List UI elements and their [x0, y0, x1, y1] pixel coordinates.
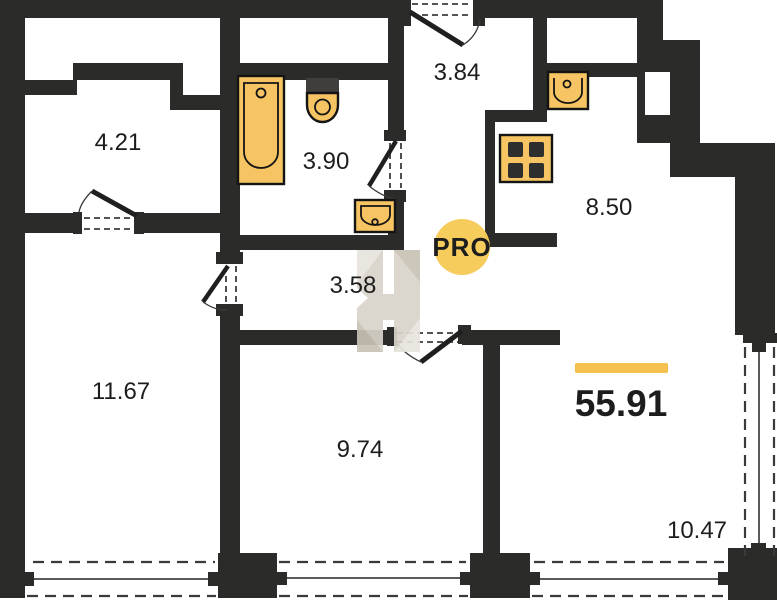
door-jamb — [216, 252, 243, 264]
window-frame-nub — [751, 543, 766, 553]
room-area-label: 11.67 — [92, 378, 150, 405]
window-frame-nub — [530, 572, 540, 585]
wall-segment — [743, 333, 777, 343]
bathroom-sink-icon — [355, 200, 395, 232]
room-area-label: 9.74 — [337, 436, 384, 463]
n-logo-facet — [383, 250, 394, 270]
pro-badge: PRO — [432, 219, 491, 275]
door-jamb — [400, 0, 411, 26]
wall-segment — [73, 63, 172, 80]
stove-burner — [529, 142, 544, 157]
wall-segment — [20, 80, 77, 95]
room-area-label: 3.58 — [330, 272, 377, 299]
room-area-label: 8.50 — [586, 194, 633, 221]
floorplan-svg: PRO 4.21 3.90 3.84 8.50 3.58 11.67 9.74 … — [0, 0, 777, 600]
door-leaf — [421, 331, 462, 362]
toilet-icon — [306, 78, 339, 122]
stove-burner — [508, 142, 523, 157]
pro-badge-text: PRO — [432, 232, 491, 262]
total-area-accent-bar — [575, 363, 668, 373]
wall-segment — [143, 213, 222, 233]
room-area-label: 3.84 — [434, 59, 481, 86]
bathtub-icon — [238, 76, 284, 184]
stove-burner — [529, 163, 544, 178]
wall-segment — [533, 13, 547, 122]
bottom-window-band — [25, 562, 728, 596]
stove-body — [500, 135, 552, 182]
wall-segment — [485, 110, 495, 247]
wall-segment — [670, 143, 775, 177]
wall-segment — [0, 0, 663, 18]
n-logo-crossbar — [381, 294, 396, 320]
entrance-door — [400, 0, 485, 45]
window-frame-nub — [718, 572, 728, 585]
room-top-left-door — [73, 191, 144, 234]
wall-segment — [183, 95, 222, 110]
toilet-tank — [306, 78, 339, 93]
window-frame-nub — [25, 572, 34, 586]
wall-segment — [735, 177, 775, 335]
wall-pier — [728, 548, 777, 600]
kitchen-sink-icon — [548, 72, 588, 109]
wall-segment — [462, 330, 560, 345]
bathroom-door — [369, 130, 406, 202]
right-window — [745, 343, 774, 560]
total-area-label: 55.91 — [575, 383, 668, 424]
room-area-label: 4.21 — [95, 129, 142, 156]
duct-shaft — [645, 72, 670, 115]
wall-segment — [388, 17, 404, 130]
wall-segment — [0, 213, 74, 233]
window-frame-nub — [460, 572, 470, 585]
floorplan-canvas: PRO 4.21 3.90 3.84 8.50 3.58 11.67 9.74 … — [0, 0, 777, 600]
wall-pier — [218, 553, 277, 598]
wall-segment — [220, 316, 240, 553]
wall-segment — [483, 333, 500, 555]
wall-segment — [637, 0, 663, 43]
room-area-label: 3.90 — [303, 148, 350, 175]
door-leaf — [203, 266, 228, 302]
door-swing-arc — [79, 191, 92, 212]
wall-pier — [470, 553, 530, 598]
window-frame-nub — [752, 343, 766, 352]
window-frame-nub — [277, 572, 287, 585]
room-area-label: 10.47 — [667, 517, 727, 544]
wall-segment — [170, 63, 183, 110]
door-leaf — [369, 141, 396, 186]
window-frame-nub — [208, 572, 218, 586]
door-jamb — [384, 130, 406, 141]
wall-segment — [222, 235, 404, 250]
stove-icon — [500, 135, 552, 182]
wall-segment — [485, 233, 557, 247]
door-leaf — [92, 191, 137, 216]
door-jamb — [73, 212, 82, 234]
stove-burner — [508, 163, 523, 178]
room-left-door — [203, 252, 243, 316]
toilet-bowl — [307, 93, 338, 122]
